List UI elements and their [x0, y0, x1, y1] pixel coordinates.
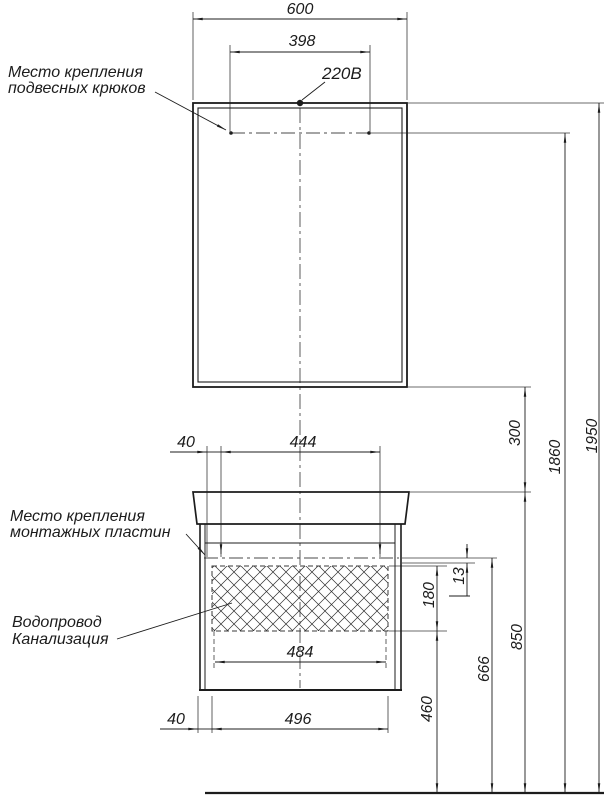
- hooks-leader-line: [155, 92, 226, 130]
- dim-total-height: 1950: [584, 418, 601, 453]
- washbasin-outline: [193, 492, 409, 524]
- dim-plate-gap: 13: [451, 567, 468, 585]
- plate-position-marks: [221, 543, 380, 554]
- dim-mirror-to-counter-gap: 300: [507, 420, 524, 446]
- hooks-label-line2: подвесных крюков: [8, 80, 146, 97]
- dim-mirror-width: 600: [287, 1, 314, 18]
- power-leader-line: [302, 82, 325, 100]
- dim-hooks-height: 1860: [547, 439, 564, 474]
- hooks-label-line1: Место крепления: [8, 64, 143, 81]
- dim-service-zone-width: 484: [287, 644, 314, 661]
- sewer-label: Канализация: [12, 631, 109, 648]
- dimension-lines: [160, 19, 599, 793]
- plates-label-line2: монтажных пластин: [10, 524, 171, 541]
- power-outlet-point: [297, 100, 303, 106]
- dim-recess-width: 496: [285, 711, 312, 728]
- power-outlet-label: 220В: [321, 64, 362, 83]
- dim-plates-height: 666: [476, 656, 493, 682]
- dim-plates-span: 444: [290, 434, 317, 451]
- service-zone-hatch: [212, 566, 388, 631]
- plates-leader-line: [186, 534, 205, 555]
- dim-recess-offset-bottom: 40: [167, 711, 185, 728]
- installation-scheme-svg: 600 398 40 444 484 40 496 300 1950 1860 …: [0, 0, 608, 800]
- utilities-label: Водопровод Канализация: [12, 614, 109, 648]
- leader-lines: [117, 92, 232, 639]
- plates-label: Место крепления монтажных пластин: [10, 508, 171, 541]
- dim-service-zone-height: 180: [421, 582, 438, 608]
- dim-hooks-span: 398: [289, 33, 316, 50]
- technical-drawing-sheet: 600 398 40 444 484 40 496 300 1950 1860 …: [0, 0, 608, 800]
- hooks-label: Место крепления подвесных крюков: [8, 64, 146, 97]
- dim-plate-offset-top: 40: [177, 434, 195, 451]
- dim-service-zone-bottom-height: 460: [419, 696, 436, 722]
- dim-counter-height: 850: [509, 624, 526, 650]
- plates-label-line1: Место крепления: [10, 508, 145, 525]
- water-label: Водопровод: [12, 614, 102, 631]
